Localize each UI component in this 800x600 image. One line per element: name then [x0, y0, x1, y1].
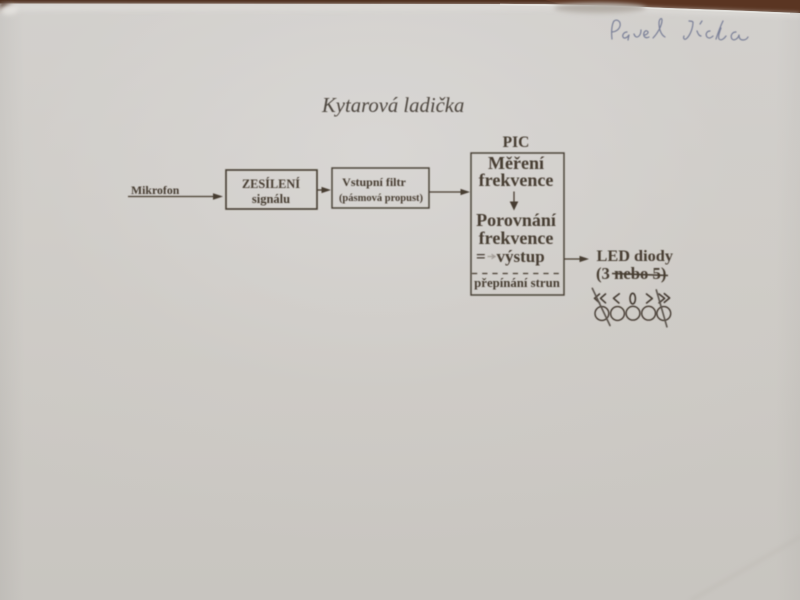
svg-text:Porovnání: Porovnání [476, 210, 557, 230]
svg-text:LED diody: LED diody [597, 246, 673, 265]
svg-text:signálu: signálu [252, 192, 290, 206]
svg-text:=: = [476, 247, 486, 266]
svg-text:frekvence: frekvence [479, 228, 554, 248]
svg-text:frekvence: frekvence [479, 170, 554, 190]
svg-text:PIC: PIC [503, 134, 530, 151]
svg-text:Kytarová ladička: Kytarová ladička [321, 95, 464, 117]
svg-text:Mikrofon: Mikrofon [131, 183, 180, 197]
svg-text:(pásmová propust): (pásmová propust) [339, 193, 424, 204]
svg-text:Vstupní filtr: Vstupní filtr [342, 175, 406, 189]
svg-text:přepínání strun: přepínání strun [474, 276, 560, 290]
svg-text:ZESÍLENÍ: ZESÍLENÍ [242, 177, 300, 191]
svg-text:výstup: výstup [497, 247, 545, 266]
